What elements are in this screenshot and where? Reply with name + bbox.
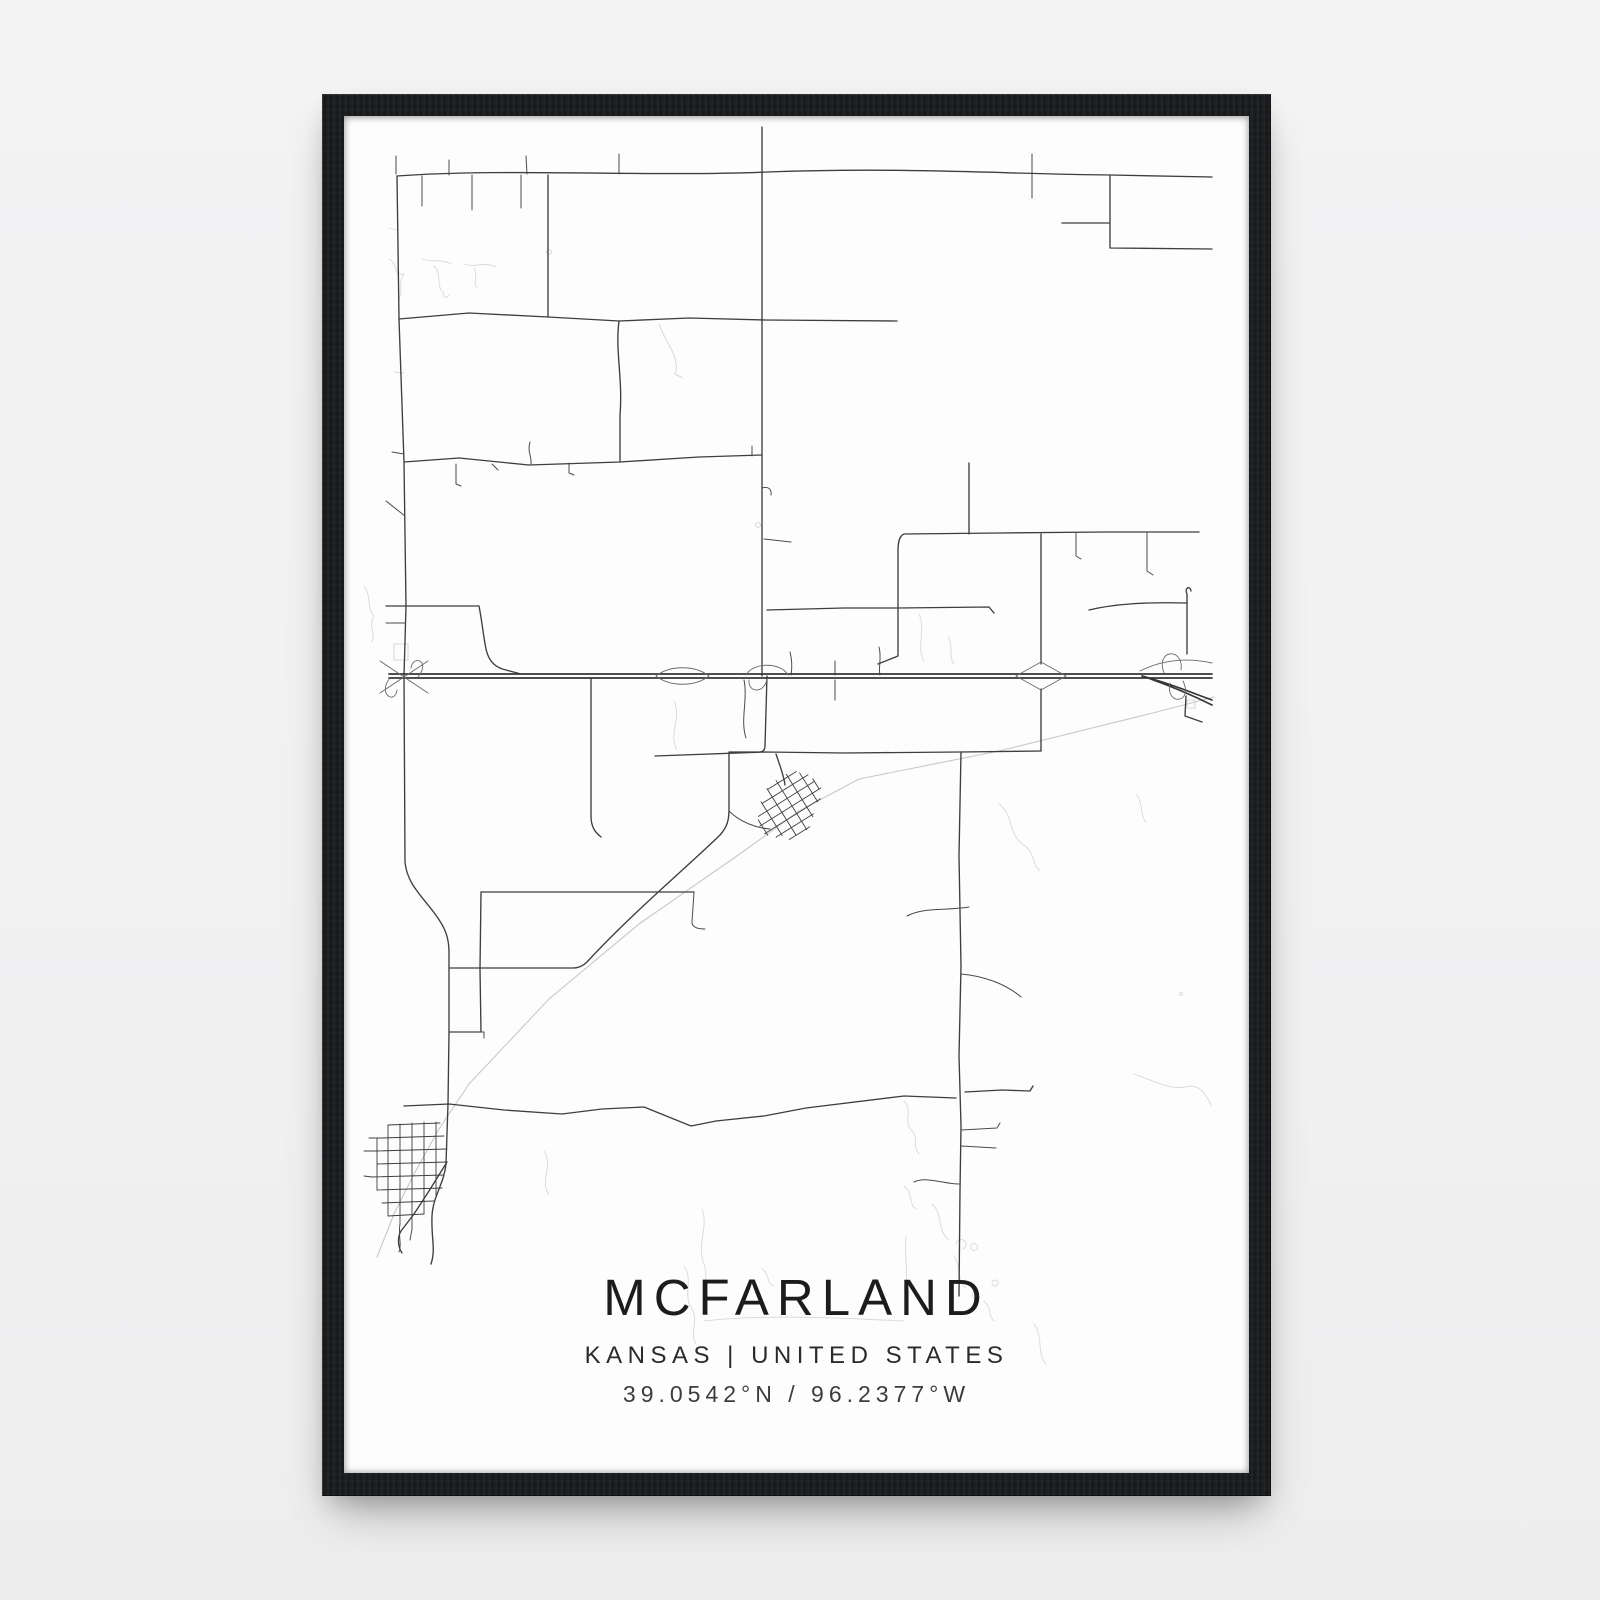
product-photo-scene: MCFARLAND KANSAS | UNITED STATES 39.0542… [0,0,1600,1600]
city-title: MCFARLAND [344,1268,1249,1327]
highway-interchanges [380,654,1212,699]
road-ticks [386,154,1153,738]
interstate-highway [380,654,1212,705]
coordinates-label: 39.0542°N / 96.2377°W [344,1381,1249,1408]
region-subtitle: KANSAS | UNITED STATES [344,1342,1249,1370]
railroad-line [377,644,1214,1257]
rural-roads [386,127,1212,1296]
town-grid-southwest [364,1122,447,1252]
creek-lines [364,228,1211,1364]
town-grid-mcfarland [744,763,836,850]
poster-frame: MCFARLAND KANSAS | UNITED STATES 39.0542… [322,94,1271,1496]
map-poster: MCFARLAND KANSAS | UNITED STATES 39.0542… [344,116,1249,1473]
poster-caption: MCFARLAND KANSAS | UNITED STATES 39.0542… [344,1268,1249,1408]
